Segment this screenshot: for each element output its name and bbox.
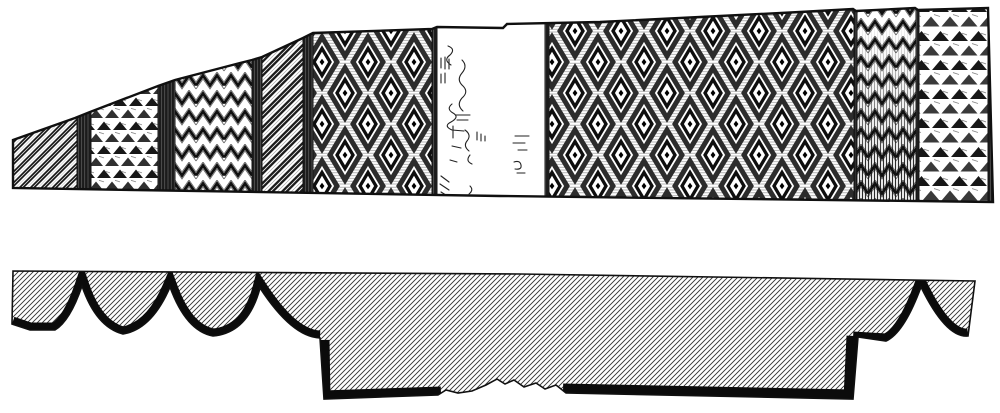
band-segment-blank-worn xyxy=(437,0,545,212)
band-segment-dark-divider xyxy=(77,0,91,212)
band-segment-dark-line xyxy=(545,0,549,212)
band-segment-diamond-lattice xyxy=(549,0,854,212)
band-segment-dark-line xyxy=(432,0,437,212)
engraving-svg xyxy=(0,0,1000,413)
band-pattern-segments xyxy=(10,0,994,212)
band-segment-diagonal-stripes xyxy=(10,0,77,212)
band-segment-dark-divider xyxy=(158,0,175,212)
engraving-plate xyxy=(0,0,1000,413)
band-segment-solid-triangles-large xyxy=(919,0,988,212)
zigzag-shading-overlay xyxy=(855,4,918,210)
band-segment-dark-divider xyxy=(252,0,262,212)
profile-hatch-fill xyxy=(5,262,983,410)
band-segment-zigzag-chevrons xyxy=(175,0,252,212)
band-segment-dark-divider xyxy=(303,0,313,212)
cross-section-profile xyxy=(5,262,983,410)
band-segment-solid-triangles xyxy=(91,0,158,212)
band-segment-diagonal-stripes-wide xyxy=(262,0,303,212)
ornamented-band-elevation xyxy=(5,0,997,215)
